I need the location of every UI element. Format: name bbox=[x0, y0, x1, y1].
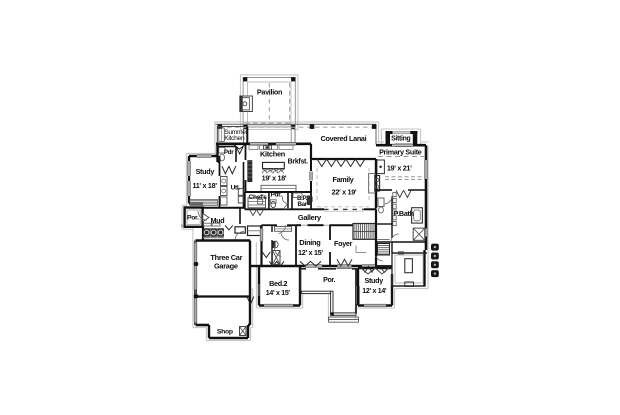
svg-text:Family: Family bbox=[333, 175, 354, 184]
svg-text:Study: Study bbox=[364, 276, 383, 285]
svg-text:11' x 18': 11' x 18' bbox=[192, 181, 217, 190]
svg-text:Gallery: Gallery bbox=[298, 213, 322, 222]
svg-text:22' x 19': 22' x 19' bbox=[332, 188, 357, 197]
svg-text:Bed.2: Bed.2 bbox=[269, 279, 287, 288]
svg-text:Pavilion: Pavilion bbox=[257, 88, 282, 97]
svg-text:P.Bath: P.Bath bbox=[394, 209, 414, 218]
svg-text:Brkfst.: Brkfst. bbox=[288, 159, 308, 166]
svg-text:Garage: Garage bbox=[214, 261, 238, 270]
svg-text:19' x 21': 19' x 21' bbox=[387, 164, 412, 173]
svg-text:Foyer: Foyer bbox=[334, 239, 353, 248]
svg-text:Dining: Dining bbox=[299, 238, 321, 247]
svg-text:Kitchen: Kitchen bbox=[260, 149, 286, 158]
svg-text:Sitting: Sitting bbox=[391, 136, 410, 143]
svg-text:19' x 18': 19' x 18' bbox=[262, 173, 287, 182]
svg-text:14' x 15': 14' x 15' bbox=[266, 290, 291, 297]
svg-text:Por.: Por. bbox=[323, 277, 335, 284]
svg-text:Shop: Shop bbox=[217, 329, 233, 336]
svg-text:Study: Study bbox=[196, 167, 215, 176]
svg-text:Kitchen: Kitchen bbox=[224, 135, 245, 142]
svg-text:Bar: Bar bbox=[297, 201, 307, 208]
svg-text:Covered Lanai: Covered Lanai bbox=[321, 134, 367, 143]
svg-text:Por.: Por. bbox=[187, 214, 199, 221]
svg-text:Primary Suite: Primary Suite bbox=[379, 148, 422, 157]
svg-text:12' x 14': 12' x 14' bbox=[362, 288, 387, 295]
svg-text:Pdr.: Pdr. bbox=[270, 192, 282, 199]
svg-text:12' x 15': 12' x 15' bbox=[298, 248, 323, 257]
